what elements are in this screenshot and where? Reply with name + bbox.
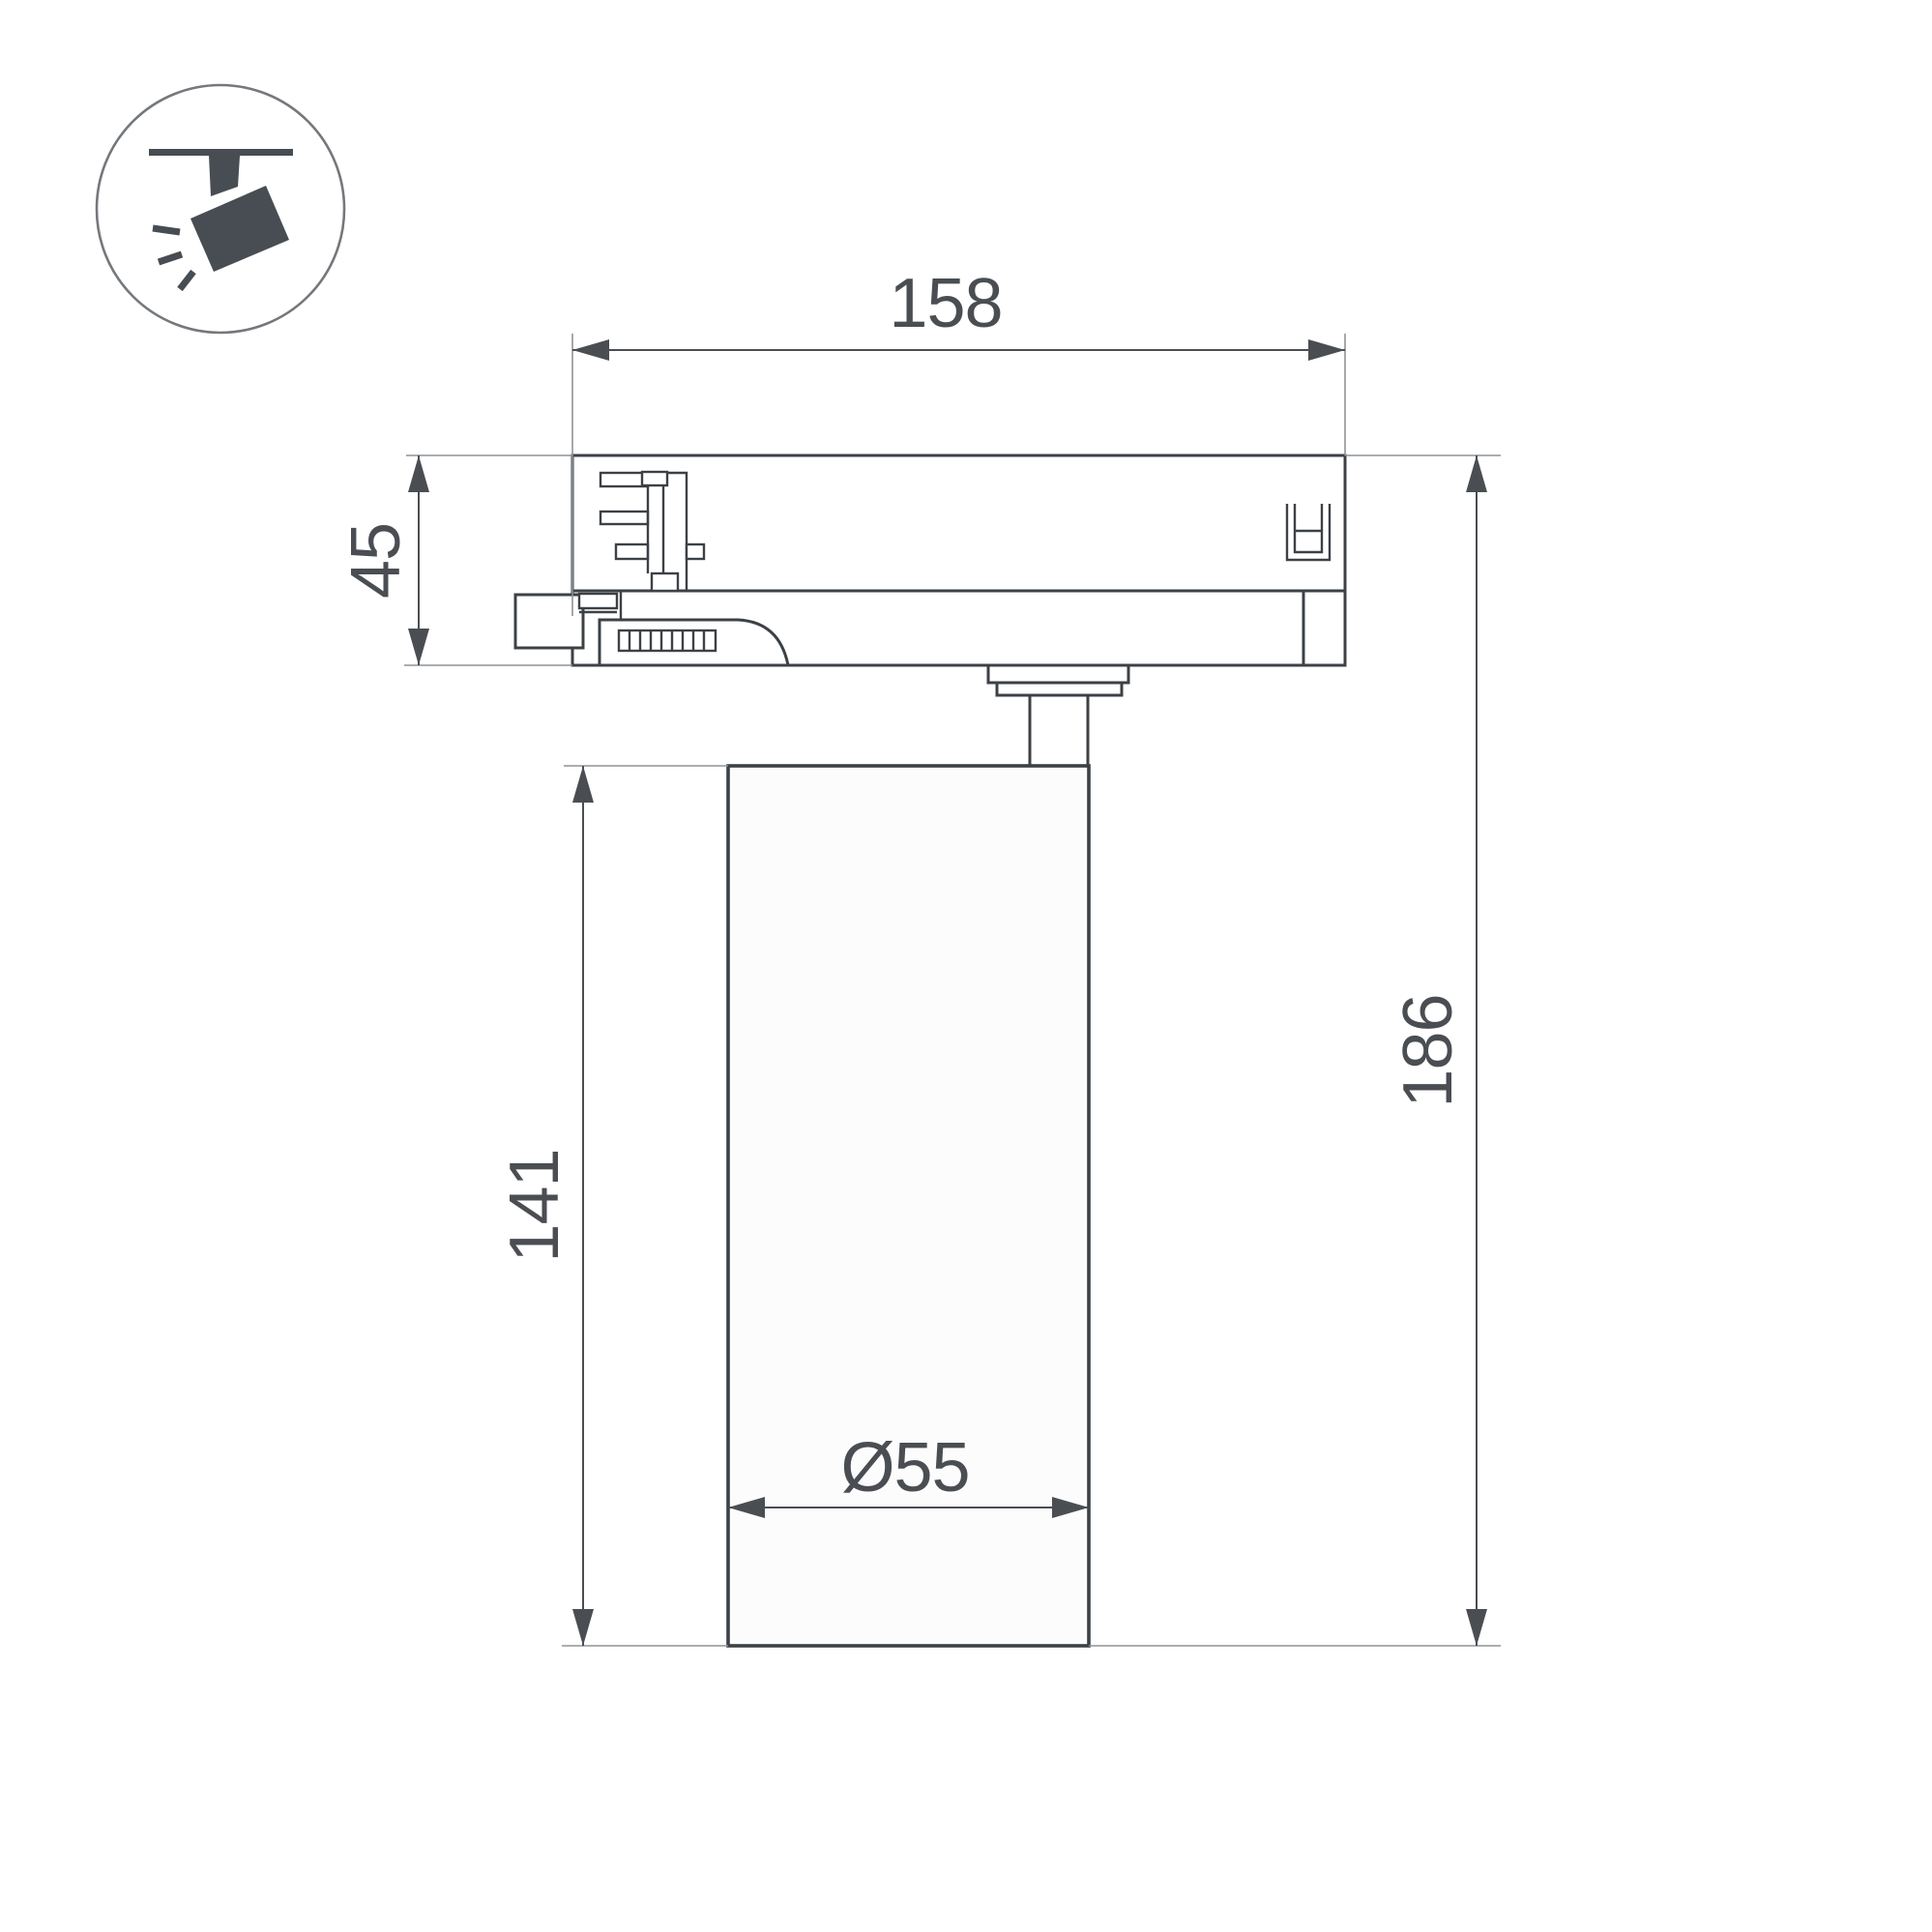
dim-186: 186 — [1390, 455, 1487, 1646]
dimension-drawing-page: 158 45 141 186 Ø55 — [0, 0, 1932, 1932]
contact-prong — [600, 473, 648, 486]
dim-label-186: 186 — [1390, 994, 1467, 1107]
arrowhead — [572, 339, 609, 361]
mount — [988, 665, 1128, 766]
contact-foot — [652, 573, 678, 591]
track-adapter — [515, 455, 1345, 665]
dim-label-45: 45 — [337, 523, 415, 599]
dim-label-55: Ø55 — [840, 1429, 969, 1507]
arrowhead — [1466, 1609, 1487, 1646]
arrowhead — [572, 1609, 594, 1646]
dim-label-141: 141 — [496, 1149, 573, 1262]
arrowhead — [572, 766, 594, 803]
light-ray-icon — [153, 228, 180, 232]
dim-45: 45 — [337, 455, 429, 665]
contact-prong — [616, 544, 648, 559]
arrowhead — [1466, 455, 1487, 492]
arrowhead — [408, 455, 429, 492]
contact-side-tab — [687, 544, 704, 559]
arrowhead — [1308, 339, 1345, 361]
contact-prong — [600, 512, 648, 524]
lamp-cylinder — [728, 766, 1089, 1646]
knurl-frame — [619, 630, 716, 651]
mount-stem — [1030, 695, 1088, 766]
latch-tab — [579, 594, 617, 608]
dim-label-158: 158 — [889, 265, 1002, 342]
arrowhead — [408, 629, 429, 665]
track-bar-icon — [149, 149, 293, 156]
track-spotlight-icon — [97, 85, 344, 333]
dim-141: 141 — [496, 766, 594, 1646]
dimension-drawing: 158 45 141 186 Ø55 — [0, 0, 1932, 1932]
mount-flange-upper — [988, 665, 1128, 683]
contact-cap — [642, 472, 667, 485]
dim-158: 158 — [572, 265, 1345, 361]
mount-flange-lower — [997, 683, 1122, 695]
knurled-grip — [619, 630, 716, 651]
